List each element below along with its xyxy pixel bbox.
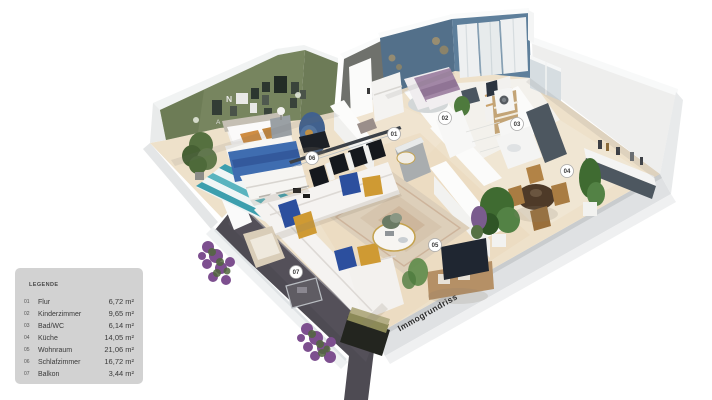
svg-text:06: 06 <box>24 359 30 365</box>
svg-text:04: 04 <box>564 169 571 175</box>
svg-text:Bad/WC: Bad/WC <box>38 323 64 330</box>
svg-text:LEGENDE: LEGENDE <box>29 282 58 288</box>
svg-text:07: 07 <box>293 270 300 276</box>
svg-text:05: 05 <box>432 243 439 249</box>
svg-text:05: 05 <box>24 347 30 353</box>
svg-text:03: 03 <box>514 122 521 128</box>
svg-text:07: 07 <box>24 371 30 377</box>
svg-text:Küche: Küche <box>38 335 58 342</box>
svg-text:9,65 m²: 9,65 m² <box>109 309 135 318</box>
svg-text:03: 03 <box>24 323 30 329</box>
svg-text:Schlafzimmer: Schlafzimmer <box>38 359 81 366</box>
svg-text:6,14 m²: 6,14 m² <box>109 321 135 330</box>
svg-text:04: 04 <box>24 335 30 341</box>
svg-text:6,72 m²: 6,72 m² <box>109 297 135 306</box>
svg-text:01: 01 <box>391 132 398 138</box>
svg-text:02: 02 <box>24 311 30 317</box>
svg-text:14,05 m²: 14,05 m² <box>104 333 134 342</box>
svg-text:Wohnraum: Wohnraum <box>38 347 72 354</box>
svg-text:01: 01 <box>24 299 30 305</box>
svg-text:Kinderzimmer: Kinderzimmer <box>38 311 82 318</box>
svg-text:3,44 m²: 3,44 m² <box>109 369 135 378</box>
svg-text:N: N <box>226 94 232 104</box>
svg-text:16,72 m²: 16,72 m² <box>104 357 134 366</box>
svg-text:21,06 m²: 21,06 m² <box>104 345 134 354</box>
svg-text:02: 02 <box>442 116 449 122</box>
svg-text:06: 06 <box>309 156 316 162</box>
svg-text:Balkon: Balkon <box>38 371 60 378</box>
svg-text:Flur: Flur <box>38 299 51 306</box>
svg-text:A: A <box>216 119 221 126</box>
